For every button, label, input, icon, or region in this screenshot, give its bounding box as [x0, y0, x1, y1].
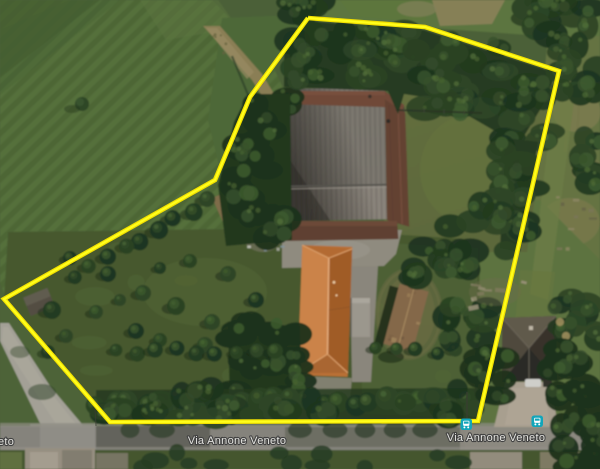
svg-text:eto: eto	[0, 436, 14, 448]
svg-text:Via Annone Veneto: Via Annone Veneto	[188, 435, 287, 447]
svg-text:Via Annone Veneto: Via Annone Veneto	[447, 432, 546, 444]
